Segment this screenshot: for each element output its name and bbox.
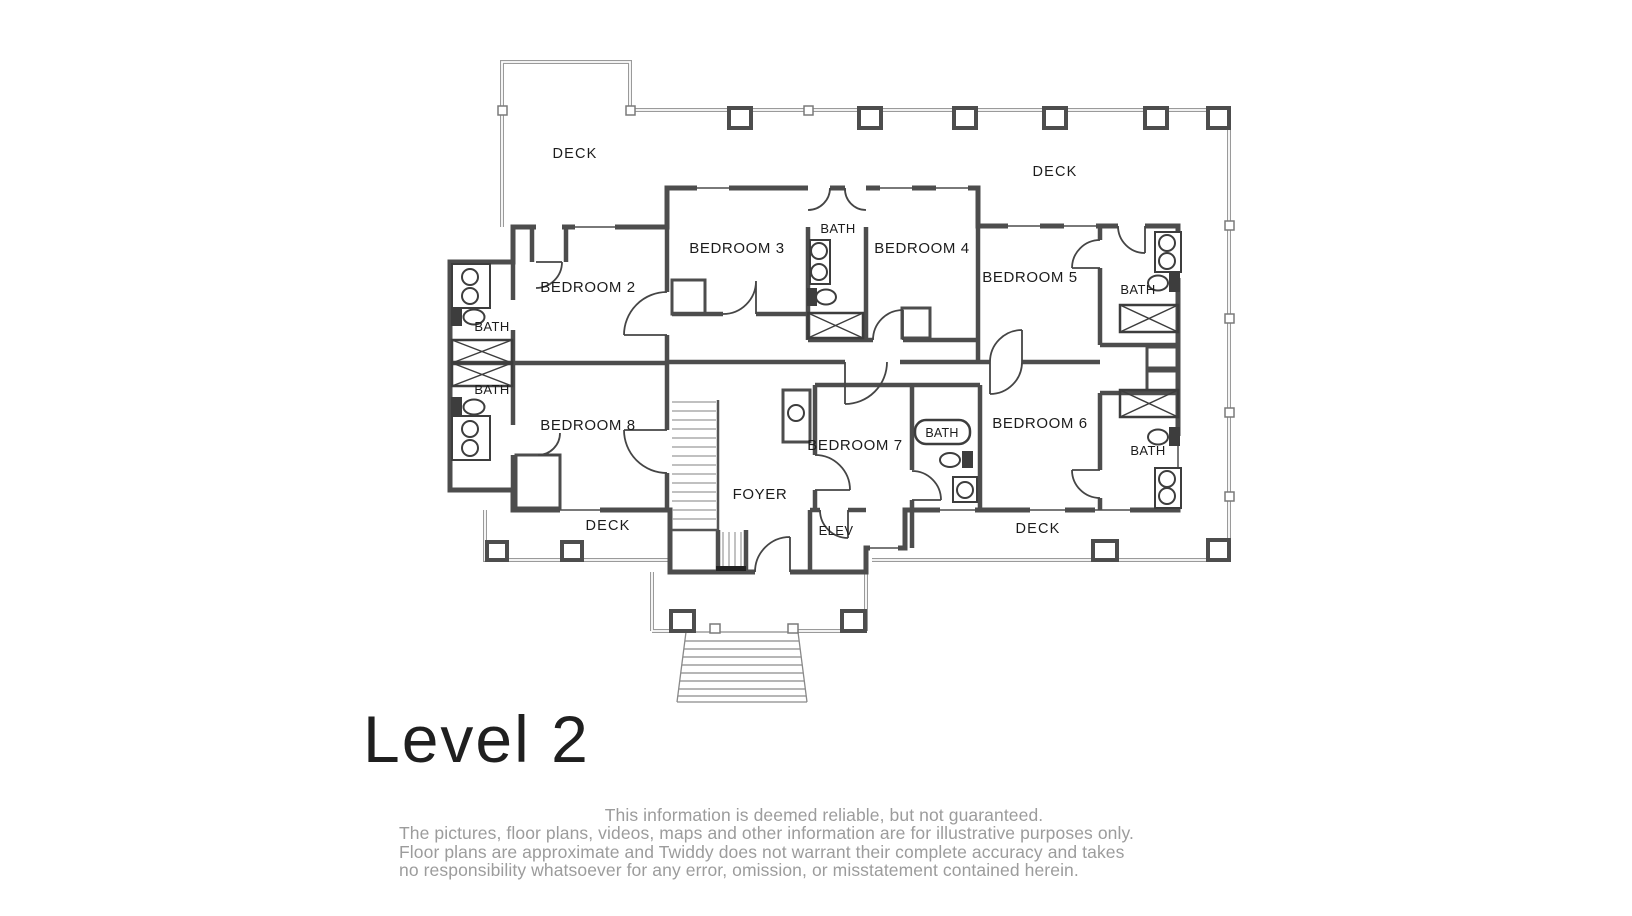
door-arcs xyxy=(536,188,1145,572)
toilet-icon xyxy=(808,289,836,305)
room-label-deck-bottom-right: DECK xyxy=(1015,521,1060,537)
room-label-bedroom-3: BEDROOM 3 xyxy=(689,240,784,257)
room-label-bedroom-6: BEDROOM 6 xyxy=(992,415,1087,432)
rail-post xyxy=(710,624,720,633)
room-label-deck-bottom-left: DECK xyxy=(585,518,630,534)
sink-icon xyxy=(810,240,830,284)
rail-post xyxy=(804,106,813,115)
sink-icon xyxy=(452,416,490,460)
room-label-deck-top-right: DECK xyxy=(1032,164,1077,180)
toilet-icon xyxy=(940,452,972,467)
disclaimer-line: no responsibility whatsoever for any err… xyxy=(399,861,1249,879)
rail-post xyxy=(498,106,507,115)
door-arc xyxy=(624,430,667,473)
sink-icon xyxy=(1155,232,1181,272)
rail-post xyxy=(626,106,635,115)
rail-post xyxy=(788,624,798,633)
room-label-bedroom-8: BEDROOM 8 xyxy=(540,417,635,434)
sink-icon xyxy=(1155,468,1181,508)
room-label-foyer: FOYER xyxy=(733,486,788,503)
shower-icon xyxy=(808,313,863,338)
door-arc xyxy=(1072,470,1100,498)
closet-bedroom4 xyxy=(902,308,930,338)
deck-post xyxy=(1208,108,1229,128)
shower-icon xyxy=(452,340,512,363)
room-label-bath-right-upper: BATH xyxy=(1120,282,1155,297)
entry-stairs xyxy=(677,632,807,702)
door-arc xyxy=(538,433,560,455)
door-arc xyxy=(1072,240,1100,268)
room-label-bedroom-7: BEDROOM 7 xyxy=(807,437,902,454)
door-arc xyxy=(990,330,1022,362)
floor-plan-page: DECK DECK DECK DECK BEDROOM 3 BATH BEDRO… xyxy=(0,0,1632,916)
deck-post xyxy=(842,611,865,631)
deck-post xyxy=(487,542,507,560)
sink-icon xyxy=(953,477,977,502)
door-arc xyxy=(912,471,941,500)
disclaimer-line: The pictures, floor plans, videos, maps … xyxy=(399,824,1249,842)
disclaimer-line: Floor plans are approximate and Twiddy d… xyxy=(399,843,1249,861)
deck-post xyxy=(954,108,976,128)
room-label-deck-top-left: DECK xyxy=(552,146,597,162)
sink-icon xyxy=(788,405,804,421)
door-arc xyxy=(723,281,756,314)
shower-icon xyxy=(1120,305,1178,332)
rail-post xyxy=(1225,492,1234,501)
rail-post xyxy=(1225,408,1234,417)
door-arc xyxy=(1118,226,1145,253)
room-label-bedroom-2: BEDROOM 2 xyxy=(540,279,635,296)
linen-closet-upper xyxy=(1147,347,1178,368)
room-label-bath-bedroom7: BATH xyxy=(925,426,958,440)
room-label-bath-right-lower: BATH xyxy=(1130,443,1165,458)
deck-post xyxy=(562,542,582,560)
deck-post xyxy=(1208,540,1229,560)
deck-post xyxy=(671,611,694,631)
room-label-elevator: ELEV xyxy=(819,523,854,538)
deck-post xyxy=(1093,541,1117,560)
door-arc xyxy=(755,537,790,572)
room-label-bath-left-lower: BATH xyxy=(474,382,509,397)
disclaimer: This information is deemed reliable, but… xyxy=(399,806,1249,880)
deck-post xyxy=(729,108,751,128)
door-arc xyxy=(873,310,903,340)
deck-post xyxy=(1044,108,1066,128)
room-label-bedroom-4: BEDROOM 4 xyxy=(874,240,969,257)
closet-bedroom8 xyxy=(516,455,560,508)
toilet-icon xyxy=(452,398,485,415)
door-arc xyxy=(815,455,850,490)
wall-openings xyxy=(536,188,1178,572)
stair-threshold xyxy=(716,566,746,571)
deck-post xyxy=(859,108,881,128)
door-arc xyxy=(990,362,1022,394)
page-title: Level 2 xyxy=(363,702,590,776)
closet-bedroom3 xyxy=(672,280,705,314)
floor-plan-canvas: DECK DECK DECK DECK BEDROOM 3 BATH BEDRO… xyxy=(0,0,1632,916)
room-label-bedroom-5: BEDROOM 5 xyxy=(982,269,1077,286)
room-label-bath-left-upper: BATH xyxy=(474,319,509,334)
room-label-bath-center: BATH xyxy=(820,221,855,236)
disclaimer-line: This information is deemed reliable, but… xyxy=(399,806,1249,824)
sink-icon xyxy=(452,264,490,308)
deck-post xyxy=(1145,108,1167,128)
rail-post xyxy=(1225,221,1234,230)
door-arc xyxy=(624,292,667,335)
rail-post xyxy=(1225,314,1234,323)
